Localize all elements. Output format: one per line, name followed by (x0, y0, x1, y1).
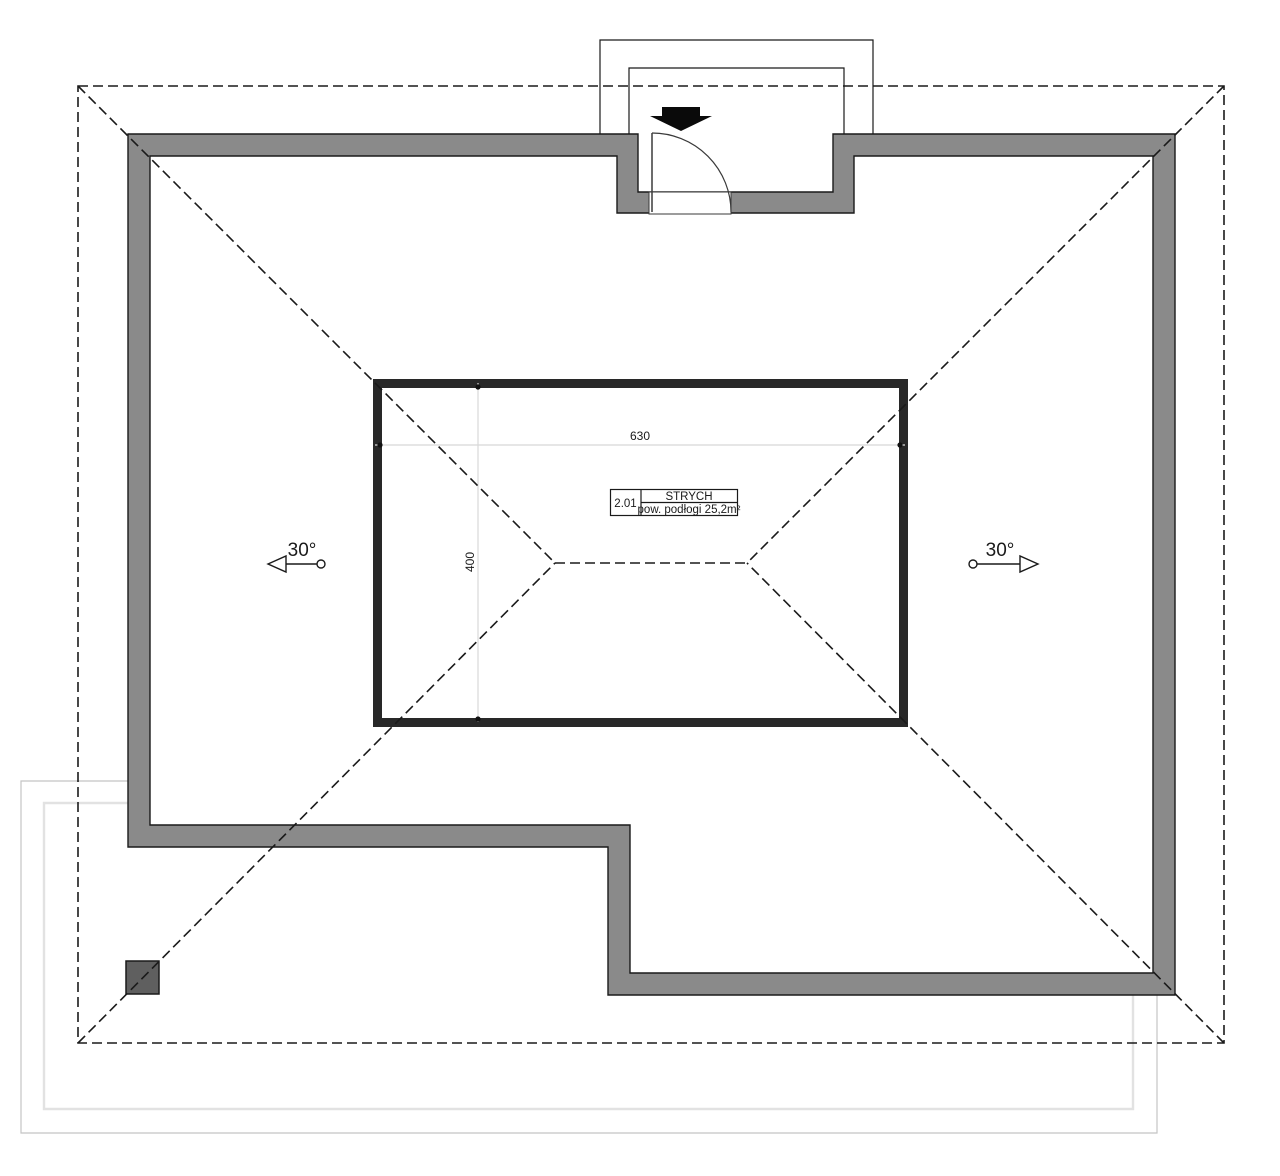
door-threshold (649, 192, 731, 214)
roof-plan-drawing: 630 400 2.01 STRYCH pow. podłogi 25,2m² … (0, 0, 1280, 1176)
slope-right-label: 30° (986, 540, 1015, 561)
entrance-canopy-outer (600, 40, 873, 134)
room-name: STRYCH (665, 491, 712, 503)
room-label-box: 2.01 STRYCH pow. podłogi 25,2m² (611, 490, 741, 517)
room-area: pow. podłogi 25,2m² (638, 504, 741, 516)
dim-label-width: 630 (630, 429, 650, 443)
entrance-arrow-icon (650, 107, 712, 131)
entrance-canopy-inner (629, 68, 844, 134)
floor-plan-canvas: 630 400 2.01 STRYCH pow. podłogi 25,2m² … (0, 0, 1280, 1176)
dim-label-depth: 400 (463, 552, 477, 572)
room-number: 2.01 (614, 498, 636, 510)
slope-left-label: 30° (288, 540, 317, 561)
